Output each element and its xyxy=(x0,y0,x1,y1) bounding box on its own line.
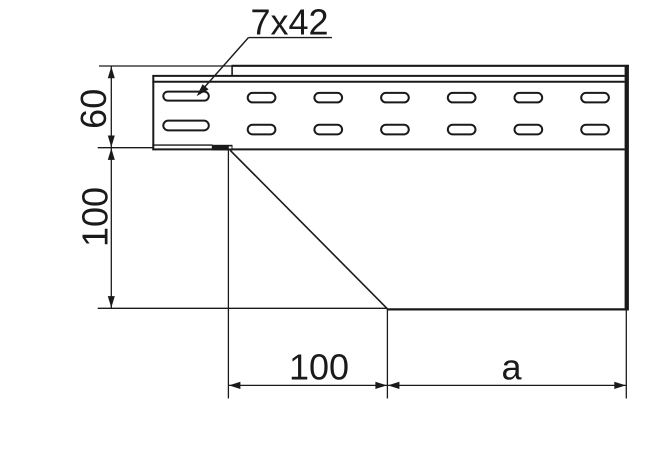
svg-text:7x42: 7x42 xyxy=(250,1,328,42)
svg-text:100: 100 xyxy=(289,347,349,388)
svg-text:60: 60 xyxy=(73,89,114,129)
svg-text:100: 100 xyxy=(75,187,116,247)
svg-text:a: a xyxy=(501,347,522,388)
